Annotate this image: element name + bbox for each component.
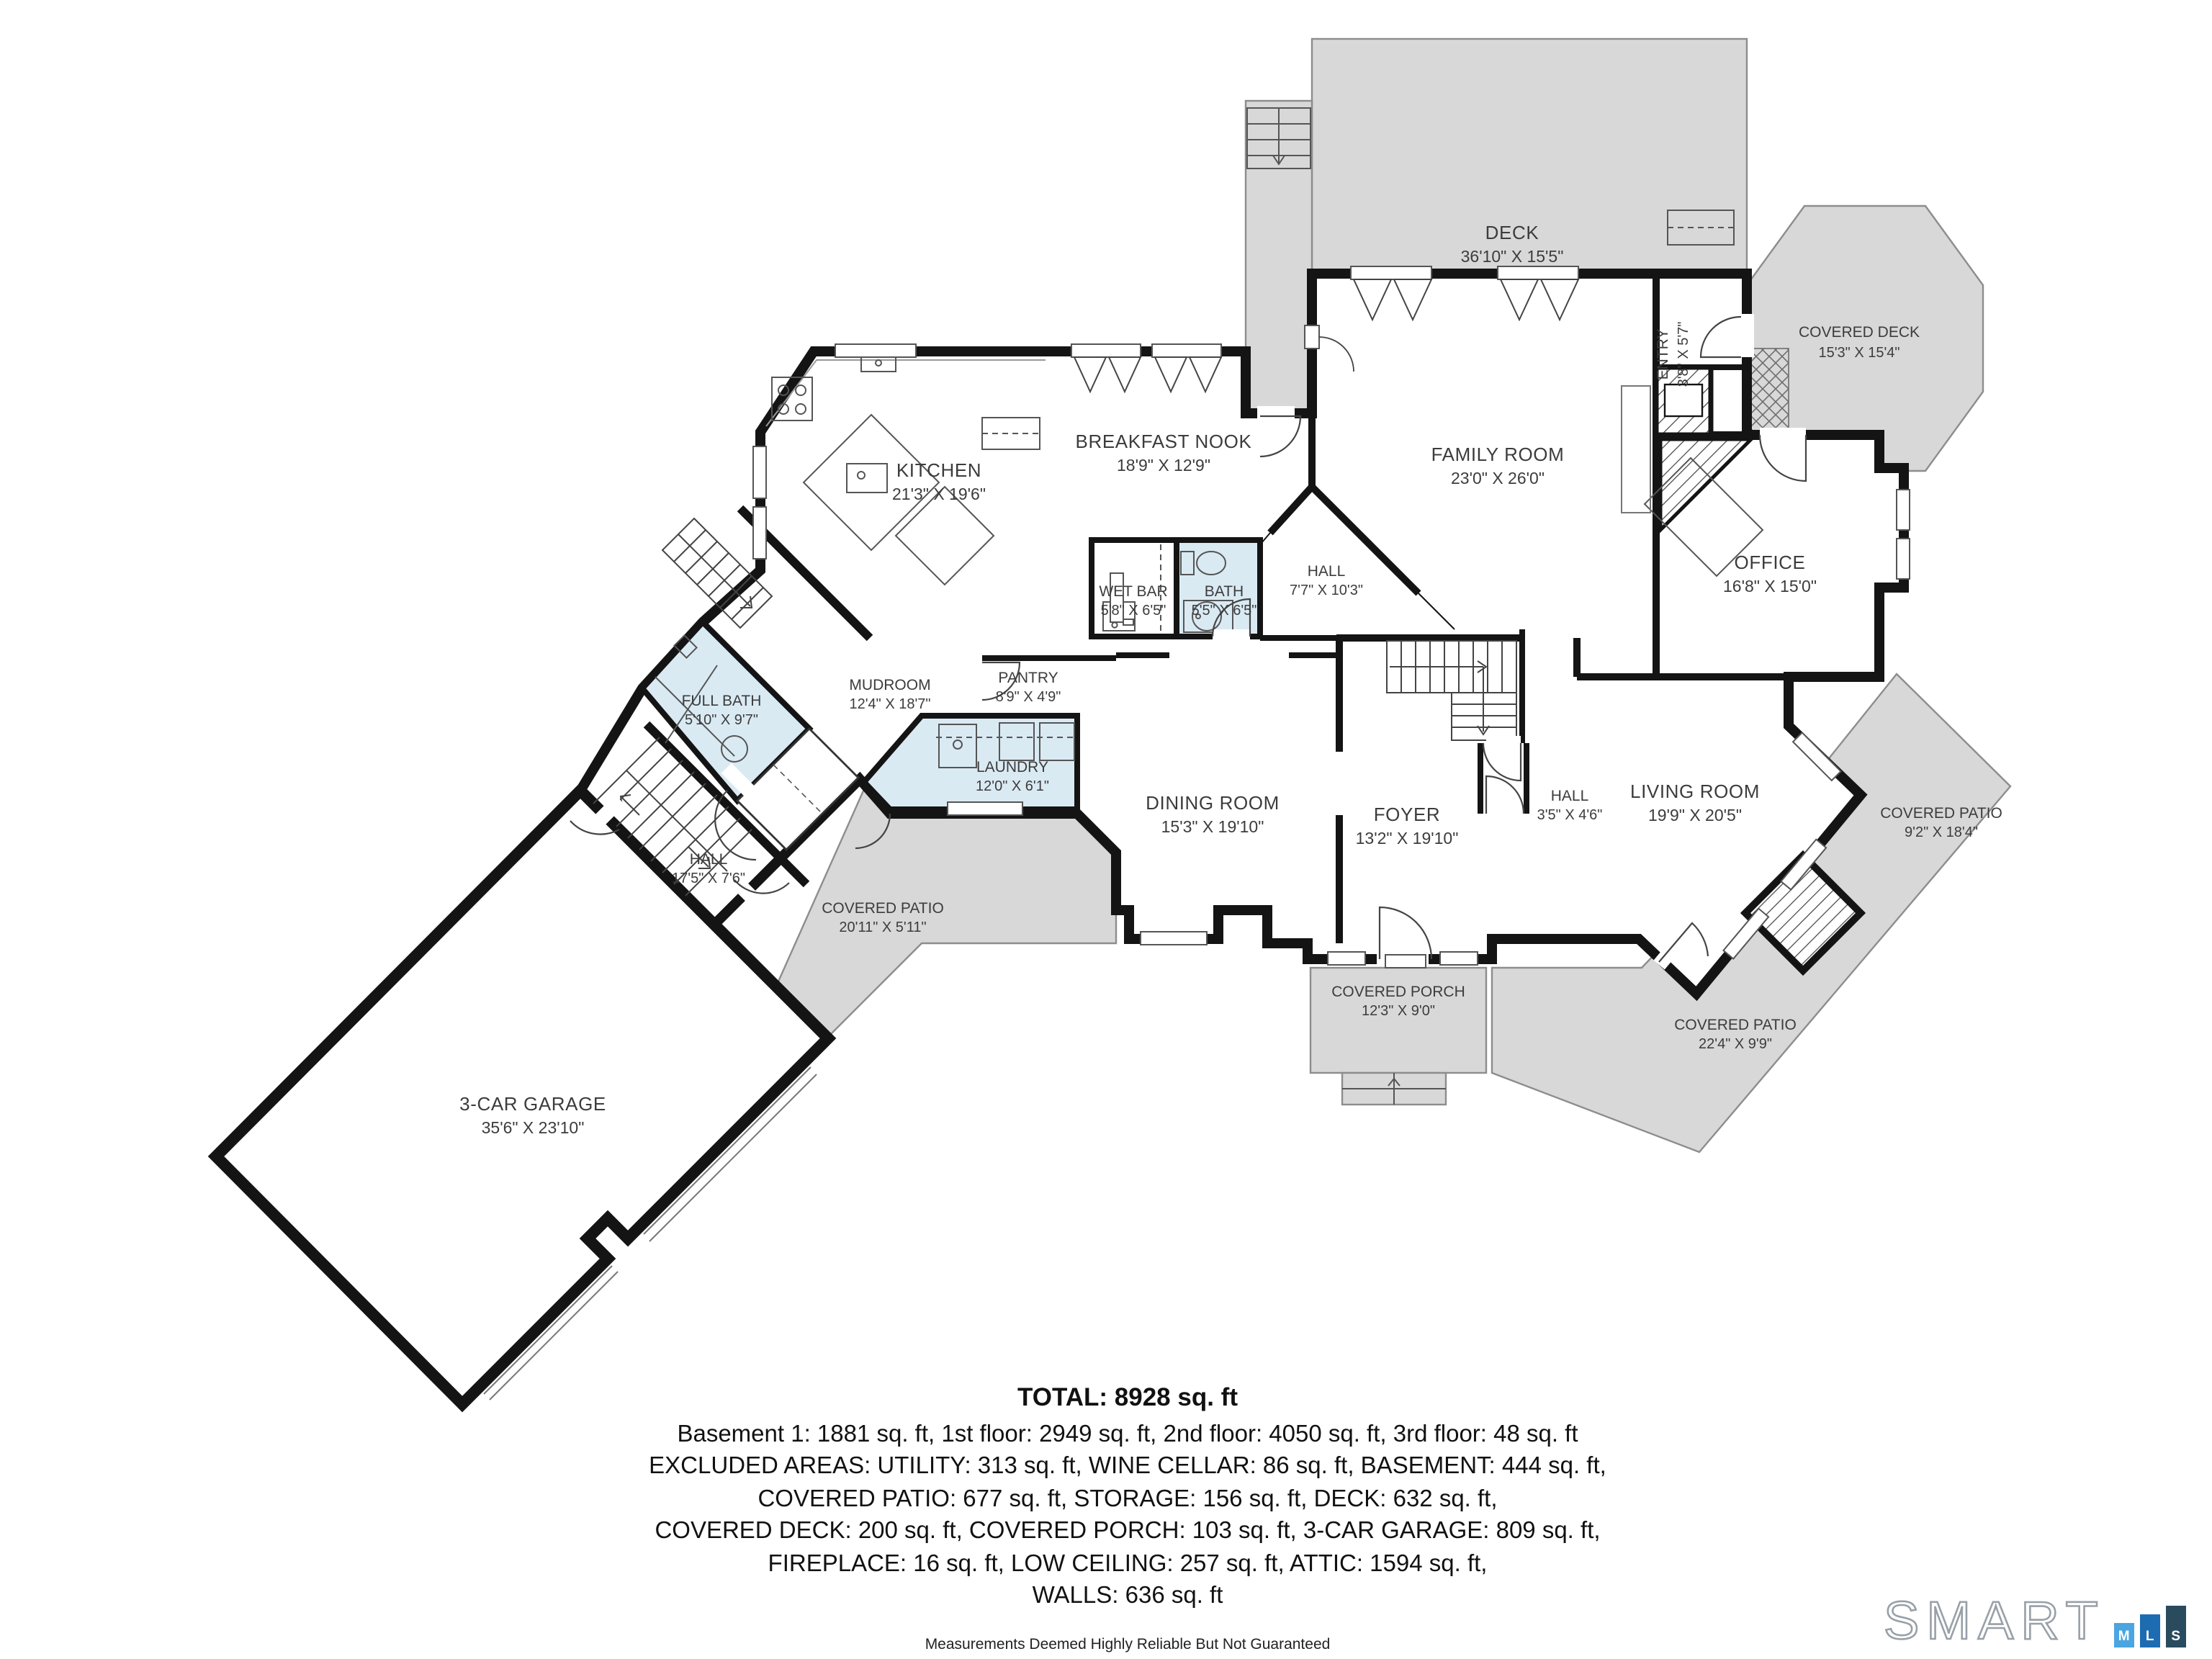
room-dims-hall-garage: 17'5" X 7'6" bbox=[672, 871, 745, 886]
room-label-hall-main: HALL bbox=[1308, 563, 1346, 580]
total-area: TOTAL: 8928 sq. ft bbox=[22, 1382, 2212, 1413]
summary-line-excluded-4: FIREPLACE: 16 sq. ft, LOW CEILING: 257 s… bbox=[22, 1547, 2212, 1580]
mls-bar-l: L bbox=[2140, 1614, 2160, 1647]
room-label-laundry: LAUNDRY bbox=[976, 759, 1048, 775]
room-dims-family: 23'0" X 26'0" bbox=[1451, 469, 1545, 487]
room-label-hall-small: HALL bbox=[1551, 788, 1589, 804]
room-label-covered-deck: COVERED DECK bbox=[1799, 324, 1920, 341]
room-dims-porch: 12'3" X 9'0" bbox=[1362, 1003, 1435, 1019]
room-dims-kitchen: 21'3" X 19'6" bbox=[892, 485, 986, 503]
room-dims-dining: 15'3" X 19'10" bbox=[1161, 817, 1264, 836]
room-label-office: OFFICE bbox=[1735, 552, 1806, 573]
room-label-dining: DINING ROOM bbox=[1146, 792, 1280, 814]
room-dims-deck: 36'10" X 15'5" bbox=[1461, 247, 1564, 266]
room-label-entry: ENTRY bbox=[1655, 329, 1671, 380]
room-dims-office: 16'8" X 15'0" bbox=[1723, 577, 1817, 595]
room-label-patio-right: COVERED PATIO bbox=[1880, 805, 2002, 822]
floor-plan-page: DECK 36'10" X 15'5" COVERED DECK 15'3" X… bbox=[0, 0, 2212, 1659]
room-dims-foyer: 13'2" X 19'10" bbox=[1356, 829, 1459, 848]
room-dims-hall-main: 7'7" X 10'3" bbox=[1290, 583, 1363, 598]
room-dims-laundry: 12'0" X 6'1" bbox=[976, 778, 1049, 794]
room-dims-patio-left: 20'11" X 5'11" bbox=[839, 920, 926, 935]
room-dims-patio-bottom: 22'4" X 9'9" bbox=[1699, 1036, 1772, 1052]
room-dims-pantry: 8'9" X 4'9" bbox=[996, 689, 1061, 705]
room-dims-full-bath: 5'10" X 9'7" bbox=[685, 712, 758, 728]
mls-bars-icon: M L S bbox=[2114, 1606, 2186, 1647]
room-label-mudroom: MUDROOM bbox=[849, 677, 930, 693]
area-summary: TOTAL: 8928 sq. ft Basement 1: 1881 sq. … bbox=[22, 1382, 2212, 1612]
smartmls-logo: SMART M L S bbox=[1884, 1590, 2200, 1647]
mls-bar-s: S bbox=[2166, 1606, 2186, 1647]
room-label-patio-left: COVERED PATIO bbox=[822, 900, 944, 917]
room-label-living: LIVING ROOM bbox=[1630, 781, 1760, 802]
room-dims-mudroom: 12'4" X 18'7" bbox=[849, 696, 930, 712]
room-label-full-bath: FULL BATH bbox=[682, 693, 762, 709]
summary-line-floors: Basement 1: 1881 sq. ft, 1st floor: 2949… bbox=[22, 1419, 2212, 1451]
room-dims-living: 19'9" X 20'5" bbox=[1648, 806, 1742, 824]
room-label-bath: BATH bbox=[1205, 583, 1244, 600]
room-label-family: FAMILY ROOM bbox=[1431, 444, 1565, 465]
room-dims-wet-bar: 5'8" X 6'5" bbox=[1101, 603, 1166, 619]
room-label-porch: COVERED PORCH bbox=[1331, 984, 1465, 1000]
room-label-foyer: FOYER bbox=[1374, 804, 1441, 825]
room-dims-bath: 5'5" X 6'5" bbox=[1192, 603, 1257, 619]
room-label-breakfast: BREAKFAST NOOK bbox=[1076, 431, 1252, 452]
room-dims-patio-right: 9'2" X 18'4" bbox=[1905, 824, 1978, 840]
summary-line-excluded-1: EXCLUDED AREAS: UTILITY: 313 sq. ft, WIN… bbox=[22, 1451, 2212, 1483]
room-dims-garage: 35'6" X 23'10" bbox=[482, 1118, 585, 1137]
room-label-hall-garage: HALL bbox=[690, 851, 728, 868]
room-label-garage: 3-CAR GARAGE bbox=[459, 1093, 606, 1115]
mls-bar-m: M bbox=[2114, 1623, 2134, 1647]
summary-line-excluded-2: COVERED PATIO: 677 sq. ft, STORAGE: 156 … bbox=[22, 1483, 2212, 1516]
room-label-kitchen: KITCHEN bbox=[896, 459, 981, 481]
room-label-wet-bar: WET BAR bbox=[1099, 583, 1167, 600]
room-dims-entry: 3'8" X 5'7" bbox=[1676, 322, 1691, 387]
smart-wordmark: SMART bbox=[1884, 1596, 2105, 1647]
room-label-patio-bottom: COVERED PATIO bbox=[1674, 1017, 1797, 1033]
room-label-pantry: PANTRY bbox=[998, 670, 1058, 686]
summary-line-excluded-3: COVERED DECK: 200 sq. ft, COVERED PORCH:… bbox=[22, 1515, 2212, 1547]
room-dims-breakfast: 18'9" X 12'9" bbox=[1117, 456, 1210, 475]
room-label-deck: DECK bbox=[1485, 222, 1539, 243]
room-dims-hall-small: 3'5" X 4'6" bbox=[1537, 807, 1603, 823]
room-dims-covered-deck: 15'3" X 15'4" bbox=[1818, 345, 1899, 361]
